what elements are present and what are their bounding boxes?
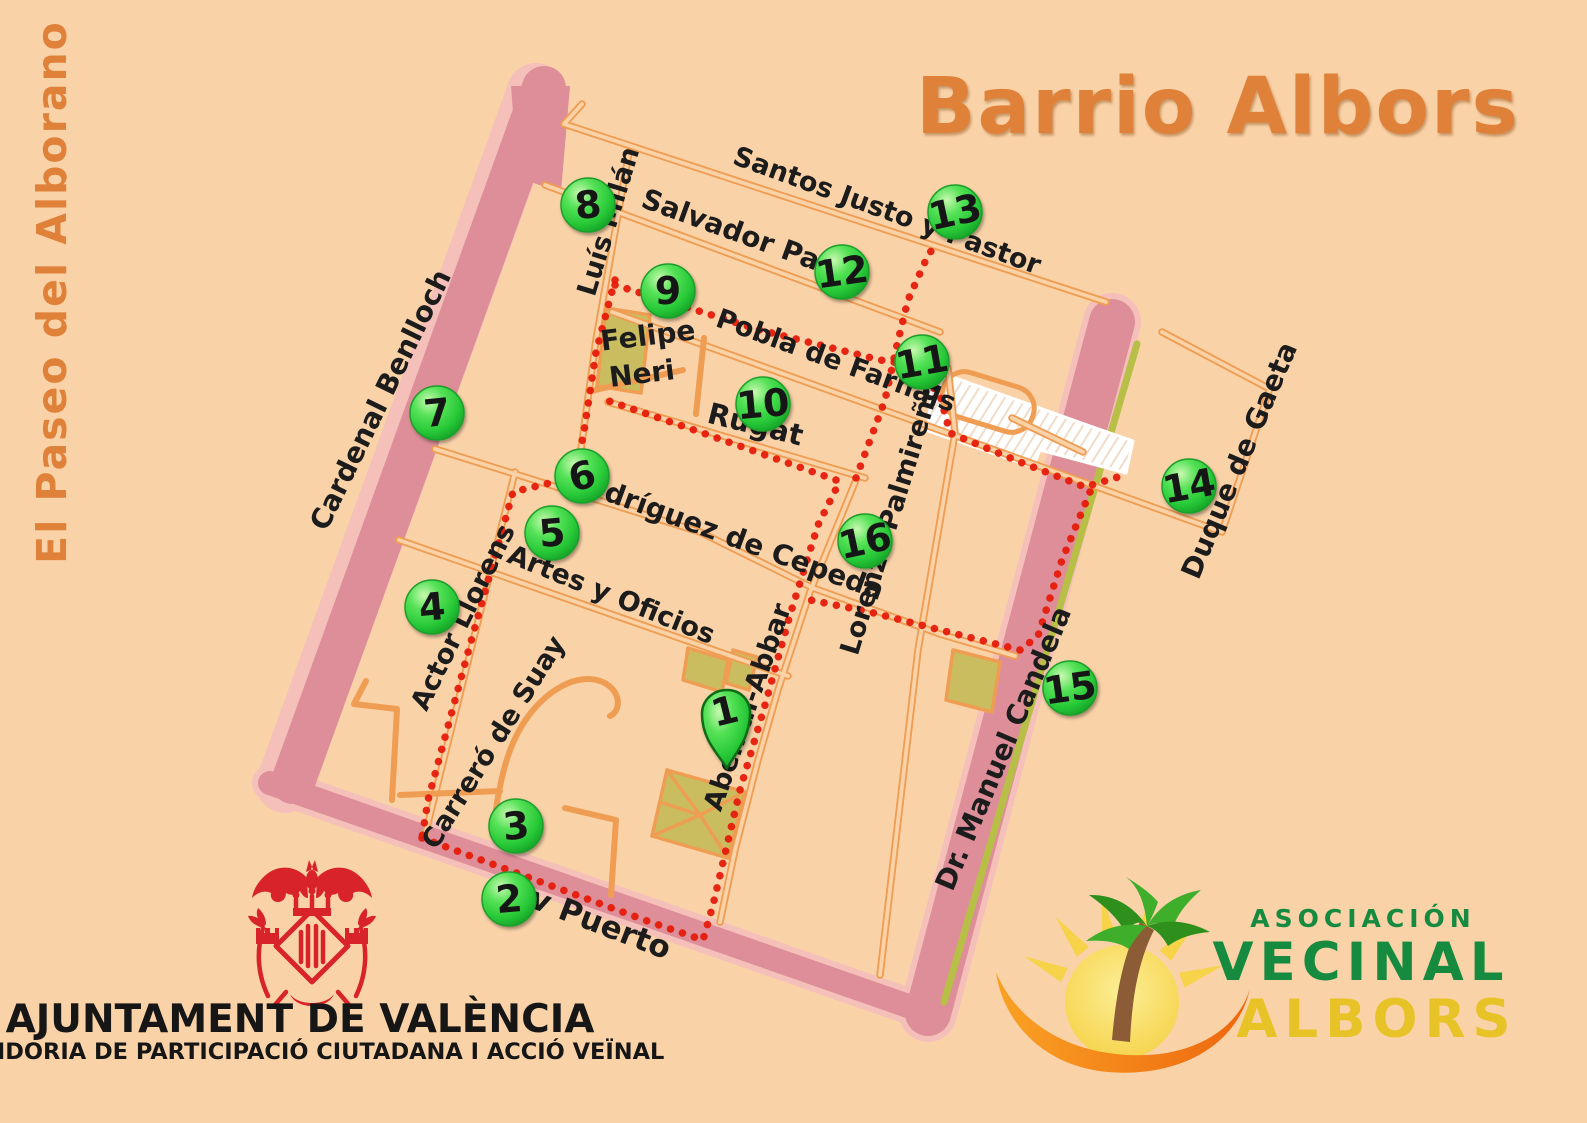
map-marker-8[interactable]: 8 [561,178,615,232]
ajuntament-title: AJUNTAMENT DE VALÈNCIA [6,995,595,1042]
map-marker-10[interactable]: 10 [735,377,792,431]
svg-text:14: 14 [1159,460,1219,513]
map-marker-3[interactable]: 3 [489,799,543,853]
map-marker-6[interactable]: 6 [555,449,609,503]
barrio-albors-map-poster: Santos Justo y Pastor Salvador Pau Luís … [0,0,1587,1123]
svg-text:11: 11 [892,336,952,389]
map-marker-12[interactable]: 12 [813,245,871,299]
park-candela [946,650,1000,712]
map-marker-7[interactable]: 7 [410,386,464,440]
svg-text:4: 4 [417,584,447,630]
svg-text:7: 7 [422,390,453,437]
side-label-paseo-alborano: El Paseo del Alborano [28,20,76,564]
albors-word: ALBORS [1236,989,1517,1050]
barrio-map-canvas: Santos Justo y Pastor Salvador Pau Luís … [0,0,1587,1123]
vecinal-word: VECINAL [1213,932,1510,993]
page-title: Barrio Albors [916,62,1520,152]
map-marker-4[interactable]: 4 [405,580,459,634]
asociacion-word: ASOCIACIÓN [1250,903,1475,933]
ajuntament-subtitle: REGIDORIA DE PARTICIPACIÓ CIUTADANA I AC… [0,1037,664,1065]
map-marker-9[interactable]: 9 [641,264,695,318]
svg-text:9: 9 [655,269,681,313]
map-marker-15[interactable]: 15 [1041,661,1099,715]
svg-text:5: 5 [537,510,567,556]
svg-text:8: 8 [573,182,604,229]
svg-text:12: 12 [813,247,871,298]
svg-text:10: 10 [735,380,792,428]
svg-text:15: 15 [1041,663,1099,714]
svg-text:2: 2 [494,876,524,922]
map-marker-2[interactable]: 2 [482,872,536,926]
svg-text:3: 3 [501,803,531,849]
map-marker-5[interactable]: 5 [525,506,579,560]
